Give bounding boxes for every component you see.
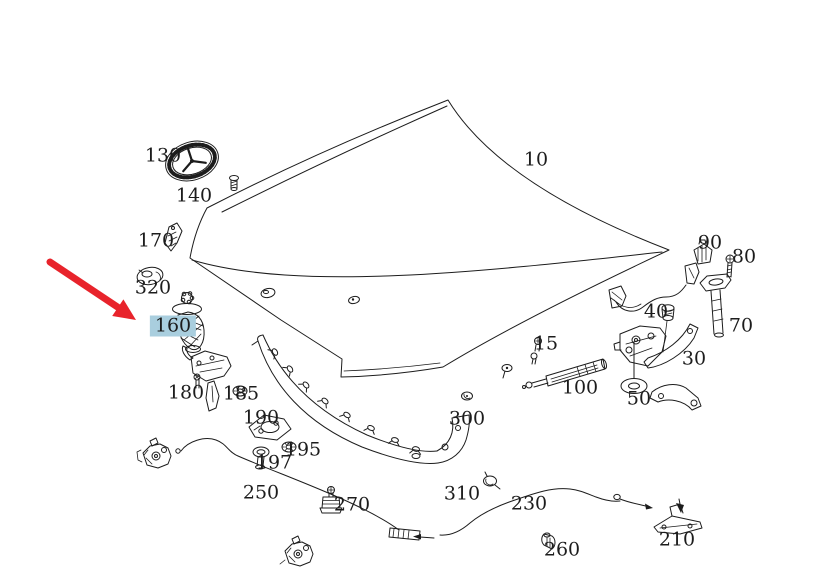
bolt-140-icon [230, 176, 239, 191]
part-label-100[interactable]: 100 [562, 379, 598, 398]
part-label-320[interactable]: 320 [135, 279, 171, 298]
part-label-230[interactable]: 230 [511, 495, 547, 514]
clip-310-icon [484, 472, 501, 489]
grommet-50-icon [621, 342, 647, 394]
diagram-linework [0, 0, 825, 573]
part-label-190[interactable]: 190 [243, 409, 279, 428]
part-label-250[interactable]: 250 [243, 484, 279, 503]
hood-panel [190, 100, 669, 400]
part-label-170[interactable]: 170 [138, 232, 174, 251]
part-label-300[interactable]: 300 [449, 410, 485, 429]
prop-rod-70 [700, 274, 731, 337]
part-label-140[interactable]: 140 [176, 187, 212, 206]
part-label-40[interactable]: 40 [644, 303, 668, 322]
cable-connector [389, 528, 434, 540]
parts-diagram: 1013014017032016018018519019519725027030… [0, 0, 825, 573]
part-label-197[interactable]: 197 [256, 454, 292, 473]
hood-lock-icon [280, 536, 313, 566]
part-label-130[interactable]: 130 [145, 147, 181, 166]
part-label-90[interactable]: 90 [698, 234, 722, 253]
part-label-180[interactable]: 180 [168, 384, 204, 403]
part-label-50[interactable]: 50 [627, 390, 651, 409]
hood-clip-icon [462, 392, 473, 400]
part-label-210[interactable]: 210 [659, 531, 695, 550]
annotation-arrow [50, 262, 136, 320]
part-label-270[interactable]: 270 [334, 496, 370, 515]
hood-clip-icon [502, 365, 512, 379]
part-label-30[interactable]: 30 [682, 350, 706, 369]
part-label-185[interactable]: 185 [223, 385, 259, 404]
part-label-160[interactable]: 160 [150, 316, 196, 337]
hood-lock-icon [137, 438, 171, 468]
part-label-70[interactable]: 70 [729, 317, 753, 336]
part-label-10[interactable]: 10 [524, 151, 548, 170]
part-label-310[interactable]: 310 [444, 485, 480, 504]
part-label-80[interactable]: 80 [732, 248, 756, 267]
part-label-15[interactable]: 15 [534, 335, 558, 354]
part-label-260[interactable]: 260 [544, 541, 580, 560]
